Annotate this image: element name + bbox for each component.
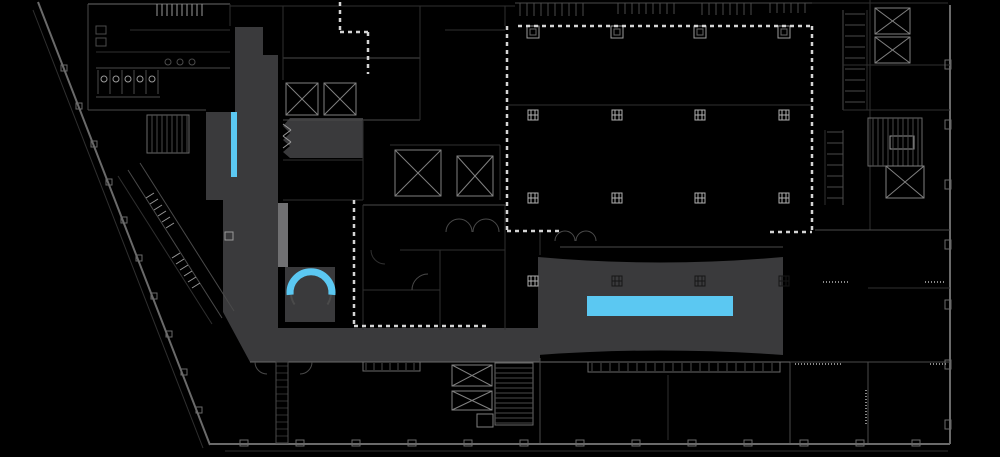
highlight-bar-long[interactable]	[587, 296, 733, 316]
comb-fixture-group	[592, 363, 772, 371]
elevator-box	[477, 414, 493, 427]
floorplan-viewport	[0, 0, 1000, 457]
column-stub	[778, 26, 790, 38]
path-room-upper	[283, 118, 363, 158]
floorplan-svg	[0, 0, 1000, 457]
column-stub	[527, 26, 539, 38]
escalator-strip	[278, 203, 288, 267]
column-stub	[611, 26, 623, 38]
path-wing-left	[206, 112, 278, 200]
column-stub	[694, 26, 706, 38]
highlight-bar-vertical[interactable]	[231, 112, 237, 177]
